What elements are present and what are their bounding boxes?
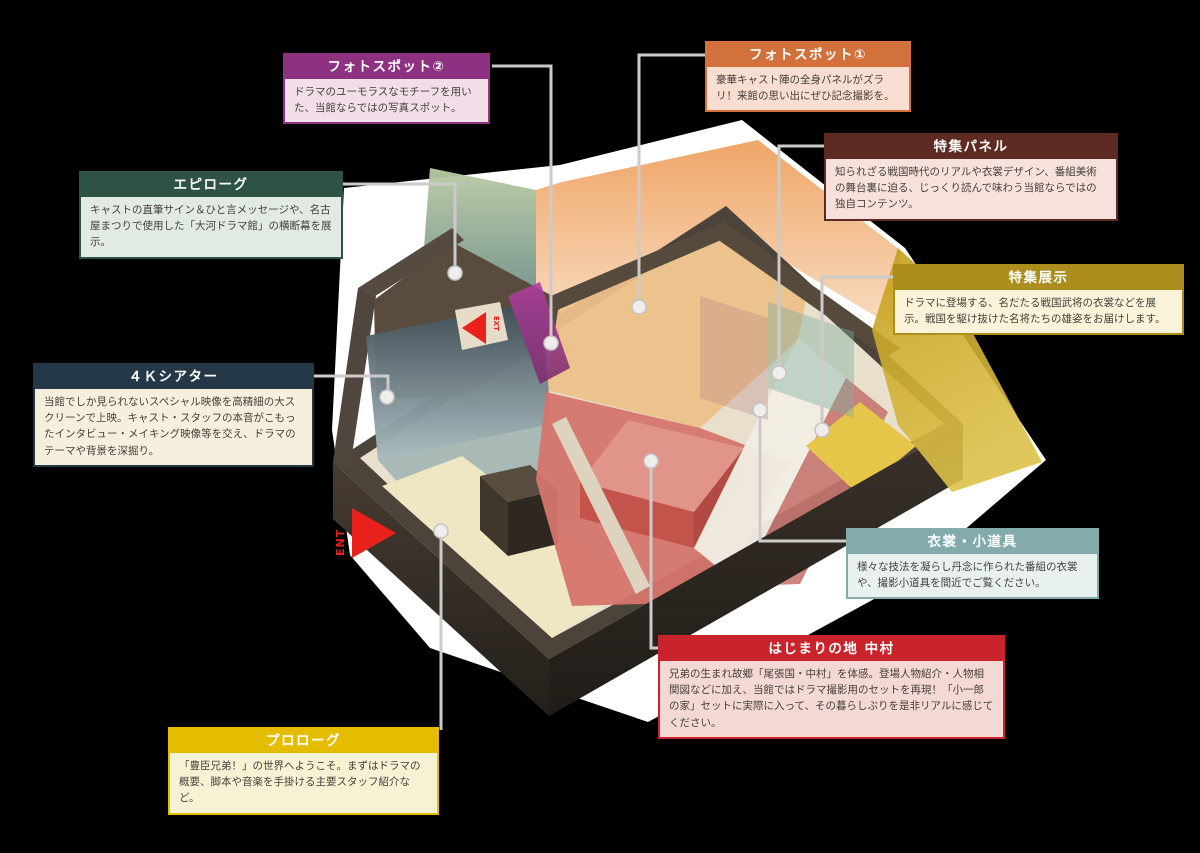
entrance-label: ENT xyxy=(334,529,347,556)
callout-4k-theater-title: ４Ｋシアター xyxy=(35,365,312,389)
callout-costumes-props: 衣裳・小道具 様々な技法を凝らし丹念に作られた番組の衣裳や、撮影小道具を間近でご… xyxy=(846,528,1099,599)
leader-dot-photo-spot-1 xyxy=(632,300,646,314)
callout-photo-spot-2-description: ドラマのユーモラスなモチーフを用いた、当館ならではの写真スポット。 xyxy=(285,79,488,123)
callout-costumes-props-description: 様々な技法を凝らし丹念に作られた番組の衣裳や、撮影小道具を間近でご覧ください。 xyxy=(848,554,1097,598)
callout-photo-spot-2-title: フォトスポット② xyxy=(285,55,488,79)
callout-prologue-title: プロローグ xyxy=(170,729,437,753)
callout-feature-panel-description: 知られざる戦国時代のリアルや衣裳デザイン、番組美術の舞台裏に迫る、じっくり読んで… xyxy=(826,159,1116,219)
callout-nakamura: はじまりの地 中村 兄弟の生まれ故郷「尾張国・中村」を体感。登場人物紹介・人物相… xyxy=(658,635,1005,739)
callout-prologue-description: 「豊臣兄弟！」の世界へようこそ。まずはドラマの概要、脚本や音楽を手掛ける主要スタ… xyxy=(170,753,437,813)
callout-epilogue-title: エピローグ xyxy=(81,173,341,197)
callout-nakamura-title: はじまりの地 中村 xyxy=(660,637,1003,661)
callout-feature-panel: 特集パネル 知られざる戦国時代のリアルや衣裳デザイン、番組美術の舞台裏に迫る、じ… xyxy=(824,133,1118,221)
callout-special-exhibition: 特集展示 ドラマに登場する、名だたる戦国武将の衣裳などを展示。戦国を駆け抜けた名… xyxy=(893,264,1184,335)
leader-dot-nakamura xyxy=(644,454,658,468)
callout-epilogue: エピローグ キャストの直筆サイン＆ひと言メッセージや、名古屋まつりで使用した「大… xyxy=(79,171,343,259)
callout-epilogue-description: キャストの直筆サイン＆ひと言メッセージや、名古屋まつりで使用した「大河ドラマ館」… xyxy=(81,197,341,257)
callout-costumes-props-title: 衣裳・小道具 xyxy=(848,530,1097,554)
callout-feature-panel-title: 特集パネル xyxy=(826,135,1116,159)
callout-photo-spot-1: フォトスポット① 豪華キャスト陣の全身パネルがズラリ！来館の思い出にぜひ記念撮影… xyxy=(705,41,911,112)
leader-dot-photo-spot-2 xyxy=(544,336,558,350)
callout-photo-spot-1-description: 豪華キャスト陣の全身パネルがズラリ！来館の思い出にぜひ記念撮影を。 xyxy=(707,67,909,111)
callout-4k-theater: ４Ｋシアター 当館でしか見られないスペシャル映像を高精細の大スクリーンで上映。キ… xyxy=(33,363,314,467)
leader-dot-feature-panel xyxy=(772,366,786,380)
callout-photo-spot-2: フォトスポット② ドラマのユーモラスなモチーフを用いた、当館ならではの写真スポッ… xyxy=(283,53,490,124)
callout-prologue: プロローグ 「豊臣兄弟！」の世界へようこそ。まずはドラマの概要、脚本や音楽を手掛… xyxy=(168,727,439,815)
callout-4k-theater-description: 当館でしか見られないスペシャル映像を高精細の大スクリーンで上映。キャスト・スタッ… xyxy=(35,389,312,465)
callout-special-exhibition-description: ドラマに登場する、名だたる戦国武将の衣裳などを展示。戦国を駆け抜けた名将たちの雄… xyxy=(895,290,1182,334)
leader-dot-costumes-props xyxy=(753,403,767,417)
leader-dot-special-exhibition xyxy=(815,423,829,437)
exit-label: EXT xyxy=(492,316,500,331)
leader-dot-4k-theater xyxy=(380,390,394,404)
callout-special-exhibition-title: 特集展示 xyxy=(895,266,1182,290)
leader-dot-epilogue xyxy=(448,266,462,280)
exhibition-floor-map: EXT ENT フォトスポット② xyxy=(0,0,1200,853)
leader-dot-prologue xyxy=(434,524,448,538)
callout-nakamura-description: 兄弟の生まれ故郷「尾張国・中村」を体感。登場人物紹介・人物相関図などに加え、当館… xyxy=(660,661,1003,737)
callout-photo-spot-1-title: フォトスポット① xyxy=(707,43,909,67)
